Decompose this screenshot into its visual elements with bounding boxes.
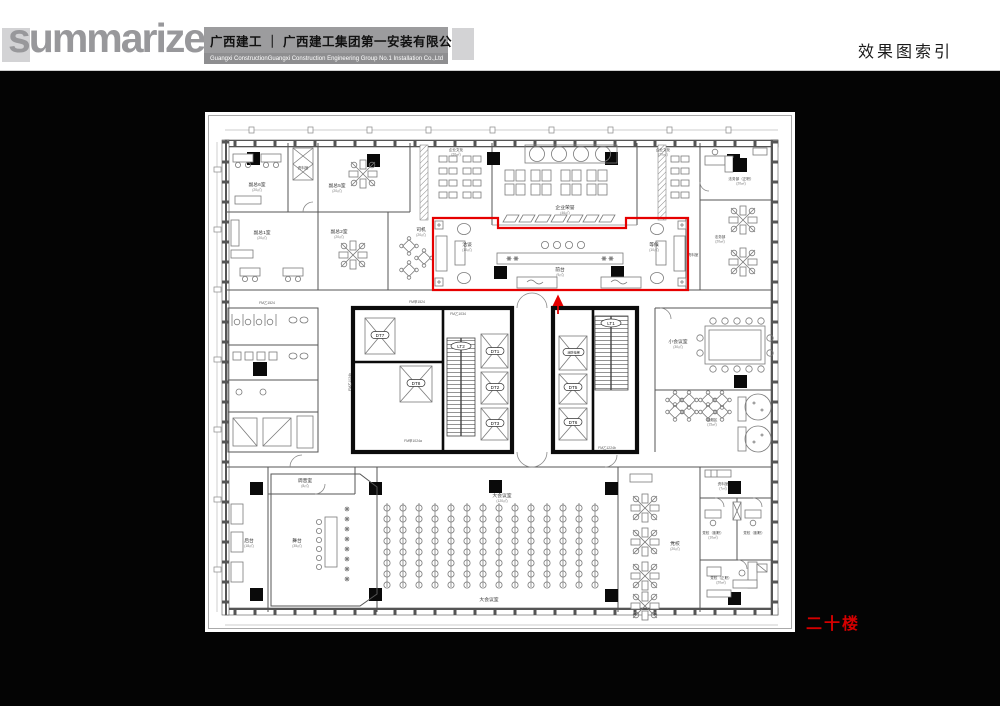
- svg-text:DT7: DT7: [376, 333, 385, 338]
- room-label: 党校（正职）(20㎡): [710, 575, 732, 585]
- room-label: 大会议室(120㎡): [492, 492, 511, 503]
- svg-text:LT2: LT2: [457, 344, 465, 349]
- room-label: 企业文化(20㎡): [449, 147, 464, 157]
- svg-text:FM乙1034: FM乙1034: [450, 311, 466, 316]
- meeting-smoking: 小会议室(30㎡) 吸烟区(15㎡): [666, 318, 774, 452]
- svg-text:FM乙1224b: FM乙1224b: [598, 445, 616, 450]
- room-label: 法务部(20㎡): [715, 234, 726, 244]
- room-label: 法务部（正职）(20㎡): [728, 176, 753, 186]
- room-label: 舞台(35㎡): [292, 537, 302, 548]
- restrooms: [232, 314, 313, 448]
- room-label: 前台(9㎡): [555, 266, 565, 277]
- svg-text:LT1: LT1: [607, 321, 615, 326]
- floor-label: 二十楼: [806, 610, 860, 634]
- svg-text:DT1: DT1: [491, 349, 500, 354]
- room-label: 资料室(7㎡): [718, 481, 729, 491]
- party-school-offices: 党校(20㎡) 资料室(7㎡) 党校（副职）(10㎡) 党校（副职） 党校（正职…: [630, 470, 767, 620]
- company-title-bar: 广西建工 ｜ 广西建工集团第一安装有限公司: [204, 27, 448, 53]
- room-label: 资料室: [298, 165, 309, 170]
- room-label: 吸烟区(15㎡): [707, 417, 718, 427]
- floor-plan-sheet: 副总6室(20㎡) 资料室 副总5室(20㎡) 副总1室(20㎡) 副总2室(2…: [205, 112, 795, 632]
- svg-text:FM乙1024b: FM乙1024b: [347, 373, 352, 391]
- room-label: 企业荣誉(46㎡): [555, 204, 574, 215]
- svg-text:消防电梯: 消防电梯: [567, 350, 579, 355]
- room-label: 后台(18㎡): [244, 537, 254, 548]
- room-label: 小会议室(30㎡): [668, 338, 687, 349]
- room-label: 资料室: [688, 252, 699, 257]
- logo-deco-right: [452, 28, 474, 60]
- company-subtitle-bar: Guangxi Construction Guangxi Constructio…: [204, 53, 448, 64]
- auditorium: 大会议室(120㎡) 大会议室: [384, 492, 598, 603]
- room-label: 大会议室: [479, 596, 498, 603]
- room-label: 党校（副职）: [743, 530, 765, 535]
- company-name-en-right: Guangxi Construction Engineering Group N…: [268, 56, 443, 62]
- svg-text:FM乙1524: FM乙1524: [259, 300, 275, 305]
- svg-text:DT6: DT6: [569, 420, 578, 425]
- executive-offices: 副总6室(20㎡) 资料室 副总5室(20㎡) 副总1室(20㎡) 副总2室(2…: [231, 148, 433, 282]
- svg-text:FM甲1524: FM甲1524: [409, 300, 425, 304]
- svg-text:DT2: DT2: [491, 385, 500, 390]
- room-label: 等候(10㎡): [649, 241, 659, 252]
- room-label: 副总2室(20㎡): [330, 228, 347, 239]
- svg-text:DT3: DT3: [491, 421, 500, 426]
- room-label: 党校(20㎡): [670, 540, 680, 551]
- company-name-en-left: Guangxi Construction: [210, 56, 268, 62]
- room-label: 副总1室(20㎡): [253, 229, 270, 240]
- logo-text: summarize: [8, 18, 204, 59]
- elevator-core: DT7 DT8 DT1 DT2 DT3 消防电梯 DT5 DT6 LT2 LT1: [353, 308, 637, 452]
- slide: summarize 广西建工 ｜ 广西建工集团第一安装有限公司 Guangxi …: [0, 0, 1000, 706]
- page-title: 效果图索引: [858, 38, 953, 62]
- room-label: 副总6室(20㎡): [248, 181, 265, 192]
- floor-plan: 副总6室(20㎡) 资料室 副总5室(20㎡) 副总1室(20㎡) 副总2室(2…: [205, 112, 795, 632]
- company-name-cn: 广西建工 ｜ 广西建工集团第一安装有限公司: [204, 31, 465, 50]
- room-label: 调音室(8㎡): [298, 477, 313, 488]
- svg-text:DT8: DT8: [412, 381, 421, 386]
- room-label: 司机(20㎡): [416, 226, 426, 237]
- reception-zone: 洽谈(10㎡) 前台(9㎡) 等候(10㎡): [435, 221, 686, 288]
- svg-text:DT5: DT5: [569, 385, 578, 390]
- header-bar: summarize 广西建工 ｜ 广西建工集团第一安装有限公司 Guangxi …: [0, 0, 1000, 71]
- room-label: 党校（副职）(10㎡): [702, 530, 724, 540]
- room-label: 副总5室(20㎡): [328, 182, 345, 193]
- room-label: 洽谈(10㎡): [462, 241, 472, 252]
- svg-text:FM甲1024a: FM甲1024a: [404, 439, 422, 443]
- room-label: 企业文化(20㎡): [656, 147, 671, 157]
- exhibition-area: 企业文化(20㎡) 企业荣誉(46㎡) 企业文化(20㎡): [439, 145, 689, 222]
